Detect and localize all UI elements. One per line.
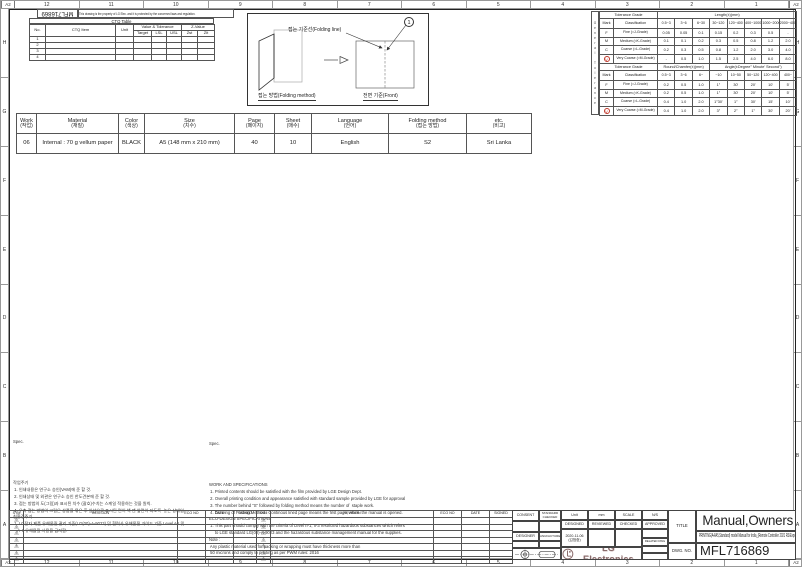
projection-symbol bbox=[512, 548, 561, 560]
drawing-sheet: A2 121110987654321 A2 A2 121110987654321… bbox=[0, 0, 802, 567]
notes-ko-heading: Spec. bbox=[13, 439, 185, 446]
standard-checked-label: STANDARD CHECKED bbox=[539, 510, 561, 521]
note-line: 2. Overall printing condition and appear… bbox=[209, 496, 405, 503]
scale-value: N/S bbox=[642, 510, 668, 520]
spec-column-header: Material (재질) bbox=[37, 114, 119, 134]
note-line: 1. Printed contents should be satisfied … bbox=[209, 489, 405, 496]
sheet-size-label: A2 bbox=[789, 1, 802, 8]
revision-column-header: ECO NO bbox=[434, 511, 462, 518]
consent-value bbox=[512, 521, 539, 532]
tolerance-angle-table: Tolerance Grade Round/Chamfer(±)(mm) Ang… bbox=[599, 63, 797, 116]
revision-column-header: SIGNED bbox=[234, 511, 257, 518]
angle-range-header: 400~ bbox=[779, 71, 796, 81]
grid-col-label: 4 bbox=[531, 1, 596, 8]
revision-table-right: SYMREVISIONECO NODATESIGNED △1 △2 △3 △4 bbox=[256, 510, 513, 564]
grid-strip-left: HGFEDCBA bbox=[1, 9, 9, 560]
grid-col-label: 8 bbox=[273, 1, 338, 8]
spec-value-cell: Internal : 70 g vellum paper bbox=[37, 134, 119, 154]
revision-triangle-icon: △7 bbox=[14, 557, 18, 563]
grid-col-label: 2 bbox=[660, 1, 725, 8]
notes-en-heading: Spec. bbox=[209, 441, 405, 448]
checked-signature bbox=[615, 529, 642, 547]
spec-column-header: Size (치수) bbox=[145, 114, 235, 134]
print-spec-table: Work (작업) Material (재질) Color (색상) Size … bbox=[16, 113, 532, 154]
tolerance-row: C Coarse (≈L-Grade) 0.20.3 0.50.8 1.22.0… bbox=[600, 46, 797, 55]
designer-label: DESIGNER bbox=[512, 532, 539, 541]
grid-col-label: 5 bbox=[467, 1, 532, 8]
length-range-header: 30~120 bbox=[710, 19, 727, 29]
drawing-title: Manual,Owners bbox=[696, 510, 796, 531]
grid-row-label: G bbox=[1, 78, 8, 147]
ctq-col-unit: Unit bbox=[116, 25, 134, 37]
note-line: WORK AND SPECIFICATIONS bbox=[209, 482, 405, 489]
lg-logo-text: LG Electronics bbox=[576, 547, 641, 560]
length-range-header: 0.5~3 bbox=[658, 19, 675, 29]
revision-triangle-icon: △3 bbox=[261, 531, 265, 537]
angle-range-header: 3~6 bbox=[675, 71, 692, 81]
length-range-header: 2000~4000 bbox=[779, 19, 796, 29]
dwg-no-value: MFL716869 bbox=[696, 543, 796, 560]
spec-value-cell: 40 bbox=[235, 134, 275, 154]
revision-triangle-icon: △2 bbox=[14, 525, 18, 531]
grid-strip-top: A2 121110987654321 A2 bbox=[1, 1, 802, 9]
ctq-table: No. CTQ Item Unit Value & Tolerance Z-Va… bbox=[29, 24, 215, 61]
angle-range-header: 50~120 bbox=[745, 71, 762, 81]
tolerance-row: M Medium (≈K-Grade) 0.20.5 1.01° 30'20' … bbox=[600, 89, 797, 98]
tolerance-row: V Very Coarse (≈M-Grade) 0.41.0 2.03° 2°… bbox=[600, 107, 797, 116]
revision-triangle-icon: △2 bbox=[261, 525, 265, 531]
spec-value-cell: A5 (148 mm x 210 mm) bbox=[145, 134, 235, 154]
spec-value-cell: 10 bbox=[275, 134, 312, 154]
revision-column-header: ECO NO bbox=[178, 511, 206, 518]
spec-value-cell: English bbox=[312, 134, 389, 154]
revision-triangle-icon: △5 bbox=[14, 544, 18, 550]
manufacturer-value bbox=[539, 541, 561, 548]
spec-value-cell: BLACK bbox=[119, 134, 145, 154]
grid-row-label: H bbox=[1, 9, 8, 78]
grid-col-label: 1 bbox=[725, 559, 790, 566]
angle-span-header: Angle(±Degree° Minute' Second") bbox=[710, 64, 797, 71]
scale-label: SCALE bbox=[615, 510, 642, 520]
folding-method-label: 접는 방법(Folding method) bbox=[258, 92, 316, 101]
grid-col-label: 3 bbox=[596, 1, 661, 8]
note-line: 3. The number behind "S" followed by fol… bbox=[209, 503, 405, 510]
grid-row-label: B bbox=[1, 422, 8, 491]
classification-header: Classification bbox=[614, 71, 658, 81]
length-range-header: 400~1000 bbox=[744, 19, 761, 29]
length-range-header: 3~6 bbox=[675, 19, 692, 29]
revision-triangle-icon: △6 bbox=[261, 551, 265, 557]
spec-column-header: Page (페이지) bbox=[235, 114, 275, 134]
ctq-col-item: CTQ Item bbox=[46, 25, 116, 37]
grid-col-label: 10 bbox=[144, 1, 209, 8]
grid-col-label: 12 bbox=[15, 1, 80, 8]
spec-column-header: Sheet (매수) bbox=[275, 114, 312, 134]
tolerance-row: F Fine (≈J-Grade) 0.20.5 1.01° 30'20' 10… bbox=[600, 81, 797, 90]
unit-value: mm bbox=[588, 510, 615, 520]
property-disclaimer: This drawing is the property of LG Elec.… bbox=[78, 9, 234, 18]
consent-label: CONSENT bbox=[512, 510, 539, 521]
revision-column-header: REVISION bbox=[24, 511, 178, 518]
revision-column-header: SYM bbox=[257, 511, 271, 518]
lg-symbol-icon bbox=[562, 548, 574, 560]
grid-columns-top: 121110987654321 bbox=[15, 1, 789, 8]
classification-header: Classification bbox=[614, 19, 658, 29]
spec-column-header: Language (언어) bbox=[312, 114, 389, 134]
revision-row: △7 bbox=[257, 557, 513, 564]
manufacturer-label: MANUFACTURER bbox=[539, 532, 561, 541]
revision-triangle-icon: △1 bbox=[14, 518, 18, 524]
spec-value-cell: 06 bbox=[17, 134, 37, 154]
angle-range-header: 6~ bbox=[692, 71, 709, 81]
revision-triangle-icon: △4 bbox=[261, 538, 265, 544]
title-label: TITLE bbox=[668, 510, 696, 543]
dwg-no-label: DWG. NO. bbox=[668, 543, 696, 560]
approved-signature bbox=[642, 529, 668, 538]
length-range-header: 120~400 bbox=[727, 19, 744, 29]
mark-header: Mark bbox=[600, 19, 614, 29]
designed-label: DESIGNED bbox=[561, 520, 588, 529]
tolerance-row: M Medium (≈K-Grade) 0.10.1 0.20.3 0.50.8… bbox=[600, 37, 797, 46]
grid-row-label: C bbox=[1, 353, 8, 422]
sheet-size-label: A2 bbox=[1, 1, 15, 8]
grid-col-label: 2 bbox=[660, 559, 725, 566]
drawing-subtitle: PRINTING(A4/A5,Standard) model Manual fo… bbox=[696, 531, 796, 543]
grid-row-label: A bbox=[1, 491, 8, 560]
sheet-size-label: A2 bbox=[789, 559, 802, 566]
revision-row: △7 bbox=[10, 557, 257, 564]
revision-column-header: REVISION bbox=[271, 511, 434, 518]
rotated-doc-number: MFL716869 bbox=[37, 9, 78, 18]
reviewed-label: REVIEWED bbox=[588, 520, 615, 529]
ctq-row: 4 bbox=[30, 55, 215, 61]
length-span-header: Length(±)(mm) bbox=[658, 12, 797, 19]
note-line: 1. 인쇄내용은 연구소 승인(VAM)에 준 할 것. bbox=[13, 487, 185, 494]
revision-triangle-icon: △5 bbox=[261, 544, 265, 550]
revision-column-header: SYM bbox=[10, 511, 24, 518]
length-range-header: 1000~2000 bbox=[762, 19, 779, 29]
round-chamfer-header: Round/Chamfer(±)(mm) bbox=[658, 64, 710, 71]
tolerance-grade-header: Tolerance Grade bbox=[600, 12, 658, 19]
tolerance-length-table: Tolerance Grade Length(±)(mm) Mark Class… bbox=[599, 11, 797, 64]
balloon-1: 1 bbox=[404, 17, 414, 27]
grid-col-label: 7 bbox=[338, 1, 403, 8]
approved-label: APPROVED bbox=[642, 520, 668, 529]
grid-col-label: 3 bbox=[596, 559, 661, 566]
tolerance-grade-header: Tolerance Grade bbox=[600, 64, 658, 71]
folding-line-label: 접는 기준선(Folding line) bbox=[288, 26, 341, 33]
tolerance-row: V Very Coarse (≈M-Grade) -0.5 1.01.5 2.5… bbox=[600, 55, 797, 64]
grid-row-label: F bbox=[1, 147, 8, 216]
related-dwg-cell-1 bbox=[642, 546, 668, 553]
spec-value-cell: Sri Lanka bbox=[467, 134, 532, 154]
mark-header: Mark bbox=[600, 71, 614, 81]
tolerance-row: C Coarse (≈L-Grade) 0.41.0 2.01°30' 1°30… bbox=[600, 98, 797, 107]
front-reference-label: 전면 기준(Front) bbox=[363, 92, 398, 101]
revision-triangle-icon: △7 bbox=[261, 557, 265, 563]
grid-col-label: 4 bbox=[531, 559, 596, 566]
revision-triangle-icon: △3 bbox=[14, 531, 18, 537]
designer-value bbox=[512, 541, 539, 548]
related-dwg-label: RELATED DWG bbox=[642, 538, 668, 546]
general-tolerance-side-label: General Tolerance bbox=[591, 11, 599, 115]
angle-range-header: 0.5~3 bbox=[658, 71, 675, 81]
revision-column-header: SIGNED bbox=[490, 511, 513, 518]
revision-triangle-icon: △6 bbox=[14, 551, 18, 557]
grid-col-label: 11 bbox=[80, 1, 145, 8]
revision-column-header: DATE bbox=[206, 511, 234, 518]
standard-checked-value bbox=[539, 521, 561, 532]
grid-row-label: E bbox=[1, 216, 8, 285]
length-range-header: 6~30 bbox=[692, 19, 709, 29]
angle-range-header: 10~50 bbox=[727, 71, 744, 81]
spec-column-header: Folding method (접는 방법) bbox=[389, 114, 467, 134]
spec-column-header: Color (색상) bbox=[119, 114, 145, 134]
folding-diagram: 접는 기준선(Folding line) 1 접는 방법(Folding met… bbox=[247, 13, 429, 106]
revision-table-left: SYMREVISIONECO NODATESIGNED △1 △2 △3 △4 bbox=[9, 510, 257, 564]
spec-column-header: Work (작업) bbox=[17, 114, 37, 134]
spec-column-header: etc. (비고) bbox=[467, 114, 532, 134]
checked-label: CHECKED bbox=[615, 520, 642, 529]
related-dwg-cell-2 bbox=[642, 553, 668, 560]
grid-col-label: 9 bbox=[209, 1, 274, 8]
tolerance-row: F Fine (≈J-Grade) 0.050.05 0.10.15 0.20.… bbox=[600, 29, 797, 38]
grid-col-label: 1 bbox=[725, 1, 790, 8]
ctq-col-no: No. bbox=[30, 25, 46, 37]
designed-signature: 2020-11-06 (김범중) bbox=[561, 529, 588, 547]
angle-range-header: ~10 bbox=[710, 71, 727, 81]
grid-row-label: D bbox=[1, 285, 8, 354]
lg-logo: LG Electronics bbox=[561, 547, 642, 560]
revision-column-header: DATE bbox=[462, 511, 490, 518]
angle-range-header: 120~400 bbox=[762, 71, 779, 81]
grid-col-label: 6 bbox=[402, 1, 467, 8]
unit-label: Unit bbox=[561, 510, 588, 520]
reviewed-signature bbox=[588, 529, 615, 547]
revision-triangle-icon: △1 bbox=[261, 518, 265, 524]
note-line: 3. 접는 방법의 도(그림)과 표시된 치수 (괄호)수치는 스케일 적용하는… bbox=[13, 501, 185, 508]
spec-value-cell: S2 bbox=[389, 134, 467, 154]
note-line: 2. 인쇄상태 및 외관은 연구소 승인 한도견본에 준 할 것. bbox=[13, 494, 185, 501]
revision-triangle-icon: △4 bbox=[14, 538, 18, 544]
